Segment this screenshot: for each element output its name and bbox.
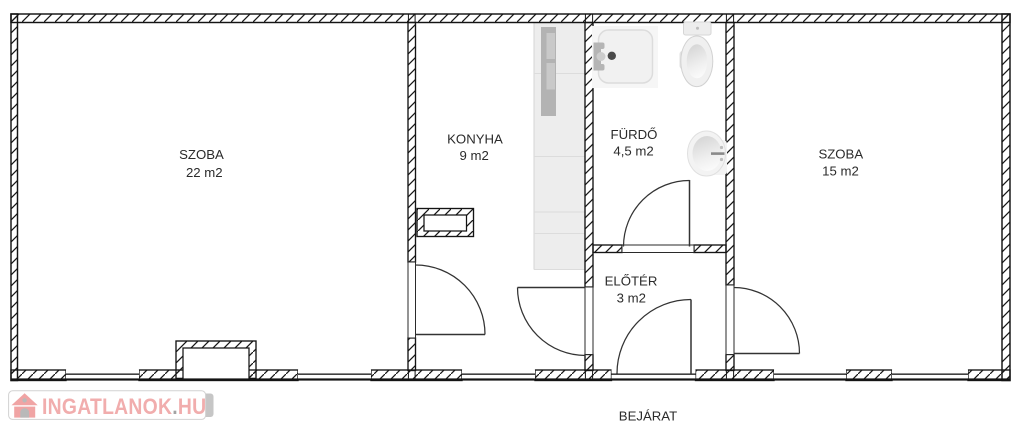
- svg-text:22 m2: 22 m2: [186, 165, 223, 180]
- svg-text:SZOBA: SZOBA: [179, 147, 224, 162]
- svg-text:4,5 m2: 4,5 m2: [613, 143, 653, 158]
- svg-text:SZOBA: SZOBA: [818, 147, 863, 162]
- svg-text:BEJÁRAT: BEJÁRAT: [619, 409, 677, 424]
- svg-text:ELŐTÉR: ELŐTÉR: [605, 274, 658, 289]
- svg-text:INGATLANOK.HU: INGATLANOK.HU: [42, 395, 206, 419]
- svg-text:15 m2: 15 m2: [822, 163, 859, 178]
- svg-text:9 m2: 9 m2: [460, 148, 489, 163]
- svg-text:KONYHA: KONYHA: [447, 132, 503, 147]
- svg-text:3 m2: 3 m2: [617, 291, 646, 306]
- svg-text:FÜRDŐ: FÜRDŐ: [611, 127, 658, 142]
